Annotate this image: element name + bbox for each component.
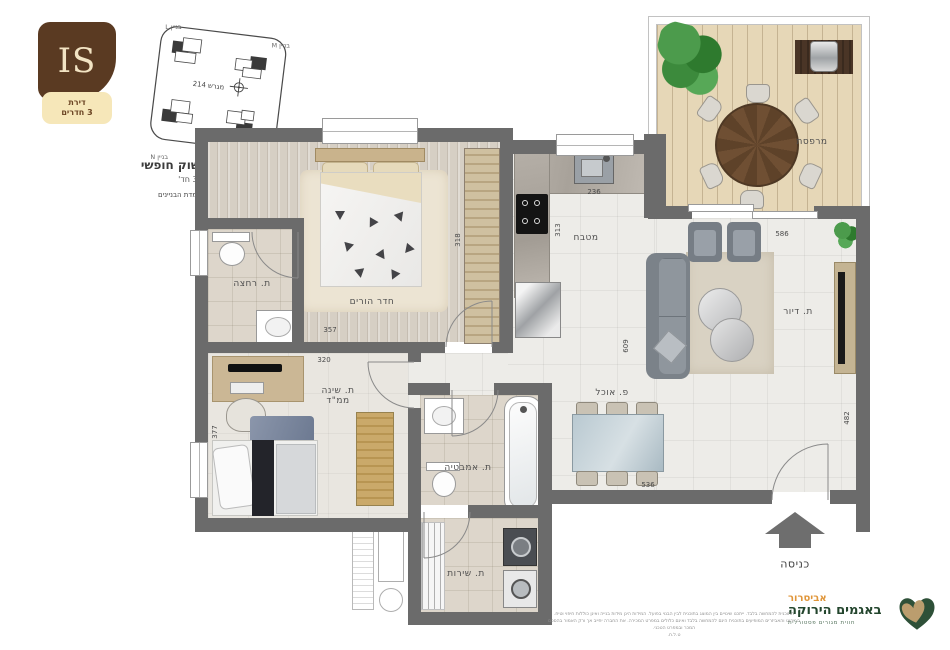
disclaimer-line1: התוכנית להמחשה בלבד. ייתכנו שינויים בין … (545, 611, 803, 618)
wall (408, 353, 421, 362)
bedroom2-label-line2: ממ"ד (321, 396, 354, 406)
bedroom2-wardrobe (356, 412, 394, 506)
dining-chair (576, 471, 598, 486)
dim-kitchen-width: 236 (587, 188, 600, 196)
utility-cabinet (378, 524, 404, 582)
wall (830, 490, 856, 504)
tv-screen (838, 272, 845, 364)
wall (208, 218, 300, 229)
wall (856, 206, 870, 532)
heart-logo (896, 594, 938, 634)
balcony-slider-door (752, 211, 818, 219)
bedroom2-blanket (276, 444, 316, 514)
bath1-label: ת. רחצה (233, 279, 270, 289)
balcony-label: מרפסת (796, 137, 827, 147)
tub-faucet-icon (520, 406, 527, 413)
badge-line2: 3 חדרים (61, 108, 92, 118)
dim-master-width: 357 (323, 326, 336, 334)
wall (408, 505, 420, 518)
building-m-label: בניין M (272, 41, 291, 49)
legal-disclaimer: התוכנית להמחשה בלבד. ייתכנו שינויים בין … (545, 611, 803, 639)
duvet-fold (321, 173, 421, 203)
dim-master-height: 318 (454, 233, 462, 246)
dim-living-side: 482 (843, 411, 851, 424)
wall (408, 383, 450, 395)
faucet-icon (603, 155, 610, 162)
disclaimer-line3: ט.ל.ח. (545, 632, 803, 639)
desk-monitor (228, 364, 282, 372)
wall (292, 218, 304, 353)
apartment-type-badge: דירת 3 חדרים (42, 92, 112, 124)
bedroom2-throw (252, 440, 274, 516)
kitchen-stove (516, 194, 548, 234)
wall (195, 342, 445, 353)
dim-living-width: 586 (775, 230, 788, 238)
entrance-label: כניסה (780, 558, 810, 571)
project-name: באגמים הירוקה (788, 604, 894, 619)
dim-bedroom2-height: 377 (211, 425, 219, 438)
dining-chair (606, 471, 628, 486)
armchair (688, 222, 722, 262)
toilet-tank (212, 232, 250, 242)
dim-bedroom2-width: 320 (317, 356, 330, 364)
entrance-arrow-stem (779, 534, 811, 548)
badge-line1: דירת (68, 98, 85, 108)
floorplan-page: IS דירת 3 חדרים (0, 0, 950, 650)
utility-shaft (352, 524, 374, 610)
window (556, 134, 634, 156)
dryer (503, 570, 537, 608)
disclaimer-line2: הריהוט והאביזרים המופיעים בתוכנית הינם ל… (545, 618, 803, 632)
bbq-grill (810, 41, 838, 72)
wall (408, 518, 421, 612)
project-tagline: חווית מגורים פסטורלית (788, 620, 894, 626)
fridge (515, 282, 561, 338)
master-wardrobe (464, 148, 500, 344)
service-label: ת. שירות (447, 569, 484, 579)
armchair (727, 222, 761, 262)
washing-machine (503, 528, 537, 566)
balcony-chair (746, 84, 770, 103)
wall (550, 490, 772, 504)
bath2-sink (424, 398, 464, 434)
building-l-label: בניין L (165, 23, 182, 31)
dim-living-height: 609 (622, 339, 630, 352)
bedroom2-desk (212, 356, 304, 402)
wall (538, 383, 552, 612)
boiler-icon (379, 588, 403, 612)
dining-table (572, 414, 664, 472)
dining-label: פ. אוכל (595, 388, 628, 398)
bath2-toilet-bowl (432, 471, 456, 497)
is-logo-text: IS (58, 41, 97, 81)
wall (500, 142, 513, 353)
kitchen-label: מטבח (573, 233, 598, 243)
wall (468, 505, 538, 518)
balcony-table (715, 103, 799, 187)
wall (195, 518, 421, 532)
master-duvet (320, 172, 422, 287)
dim-kitchen-height: 313 (554, 223, 562, 236)
master-bedroom-label: חדר הורים (350, 297, 395, 307)
wall (648, 206, 692, 219)
wall (408, 408, 421, 518)
balcony-slider-door (688, 204, 754, 212)
entrance-arrow-icon (765, 512, 825, 534)
bathtub (504, 396, 542, 514)
window (190, 230, 208, 276)
master-headboard (315, 148, 425, 162)
desk-keyboard (230, 382, 264, 394)
is-logo: IS (38, 22, 116, 100)
developer-logo-text: אביסרור באגמים הירוקה חווית מגורים פסטור… (788, 594, 894, 626)
living-label: ת. דיור (783, 307, 813, 317)
bath2-label: ת. אמבטיה (444, 463, 491, 473)
wall (408, 612, 552, 625)
coffee-table (710, 318, 754, 362)
bedroom2-label: ת. שינה ממ"ד (321, 386, 354, 406)
toilet-bowl (219, 242, 245, 266)
wall (494, 383, 540, 395)
kitchen-sink (574, 152, 614, 184)
drying-rack (421, 522, 445, 610)
window (322, 118, 418, 144)
dim-dining-width: 536 (641, 481, 654, 489)
bedroom2-label-line1: ת. שינה (321, 386, 354, 396)
window (190, 442, 208, 498)
sofa (646, 253, 690, 379)
